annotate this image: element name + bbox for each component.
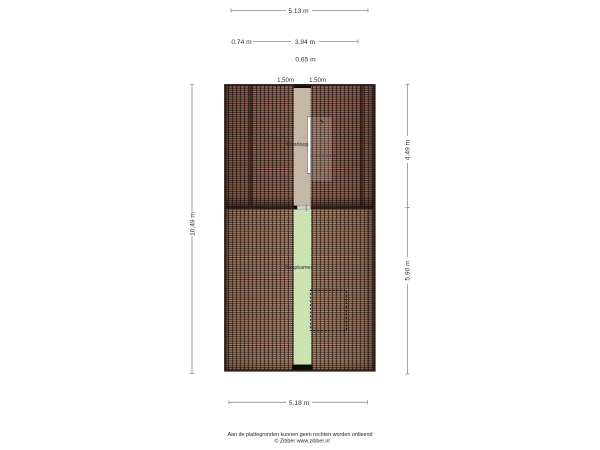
svg-text:© Zibber www.zibber.nl: © Zibber www.zibber.nl bbox=[274, 438, 329, 445]
svg-text:1,50m: 1,50m bbox=[277, 78, 294, 84]
svg-text:Aan de plattegronden kunnen ge: Aan de plattegronden kunnen geen rechten… bbox=[227, 432, 372, 438]
svg-text:0.65 m: 0.65 m bbox=[295, 57, 316, 64]
svg-text:5.13 m: 5.13 m bbox=[288, 8, 309, 15]
svg-text:3.94 m: 3.94 m bbox=[295, 39, 316, 46]
svg-text:Slaapkamer: Slaapkamer bbox=[284, 265, 313, 271]
svg-text:10.49 m: 10.49 m bbox=[189, 212, 196, 236]
svg-text:5.18 m: 5.18 m bbox=[289, 400, 310, 407]
svg-text:0.74 m: 0.74 m bbox=[231, 39, 252, 46]
svg-text:4.49 m: 4.49 m bbox=[404, 139, 411, 160]
svg-text:Overloop: Overloop bbox=[287, 142, 309, 148]
svg-text:1.50m: 1.50m bbox=[309, 78, 326, 84]
svg-text:5.90 m: 5.90 m bbox=[404, 260, 411, 281]
